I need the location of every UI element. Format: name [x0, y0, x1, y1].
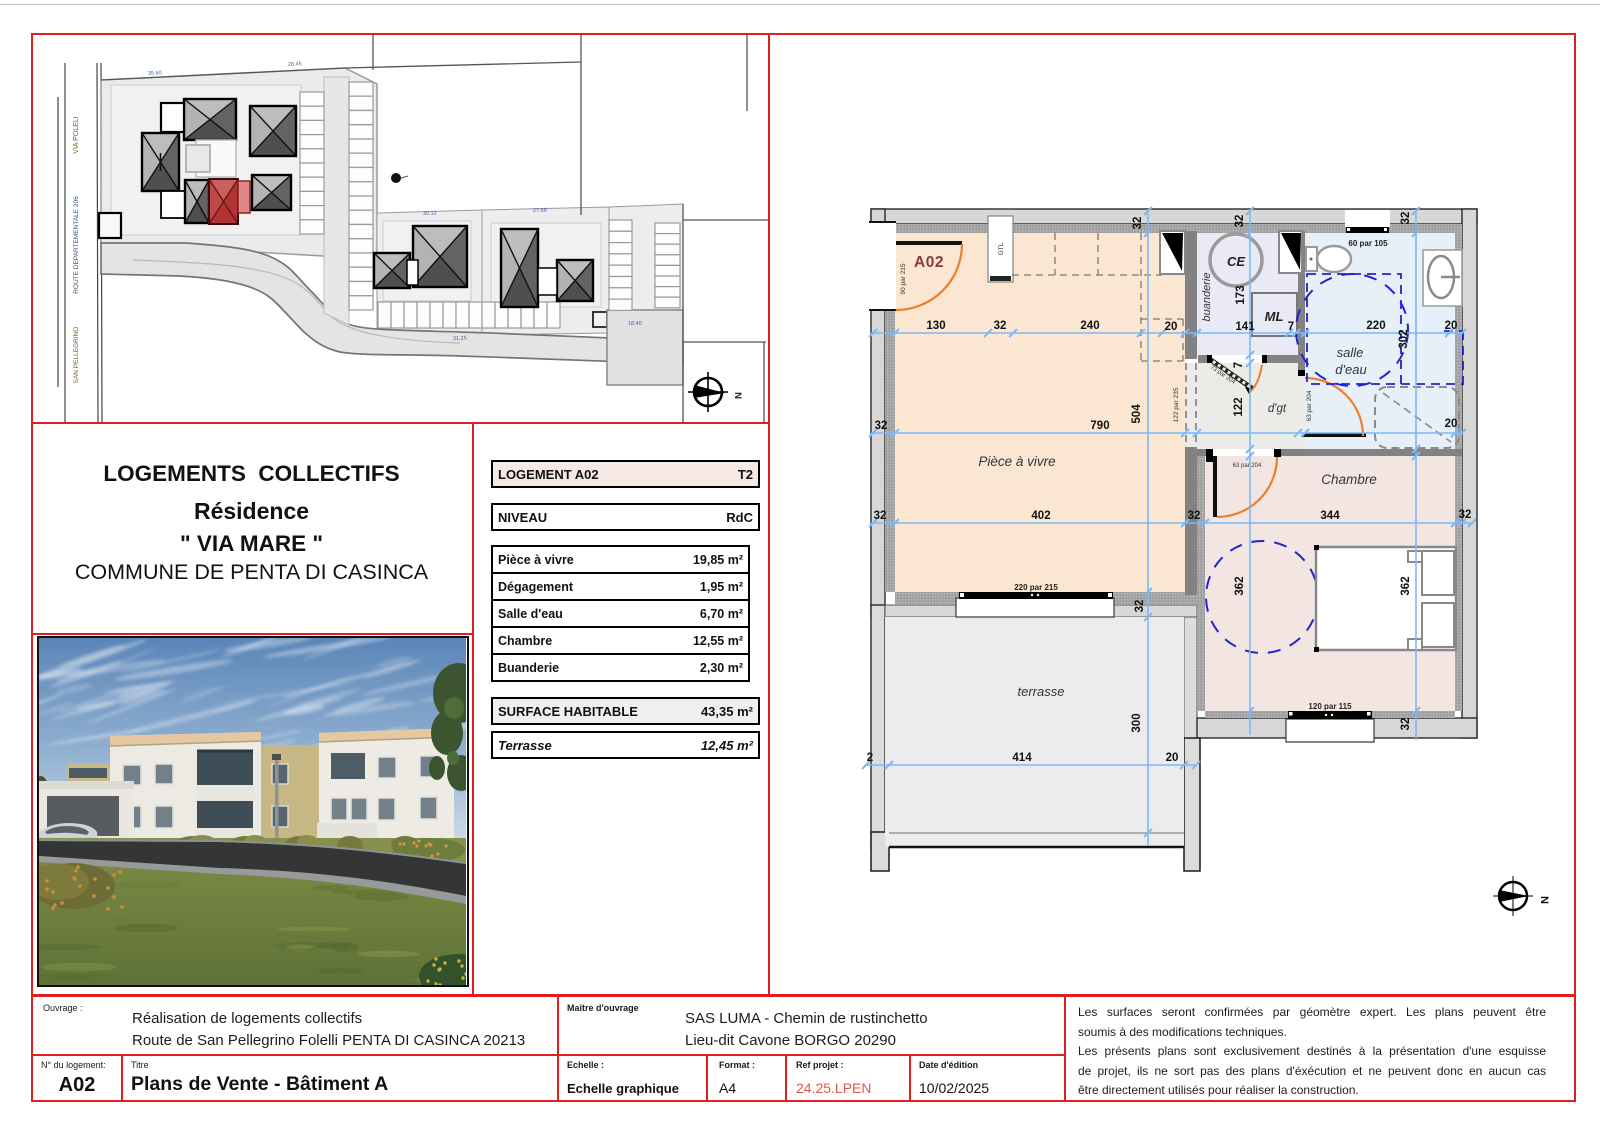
svg-text:141: 141: [1235, 321, 1255, 333]
svg-text:63 par 204: 63 par 204: [1233, 463, 1262, 469]
svg-text:414: 414: [1012, 752, 1032, 764]
svg-text:GTL: GTL: [998, 242, 1005, 255]
svg-text:122 par 235: 122 par 235: [1173, 387, 1180, 422]
svg-text:362: 362: [1400, 576, 1412, 595]
svg-text:60 par 105: 60 par 105: [1348, 239, 1388, 248]
svg-text:300: 300: [1131, 713, 1143, 732]
svg-text:302: 302: [1398, 329, 1410, 348]
svg-text:buanderie: buanderie: [1201, 273, 1213, 322]
svg-text:2: 2: [867, 752, 873, 764]
svg-text:ML: ML: [1265, 309, 1284, 324]
svg-text:ROUTE DEPARTEMENTALE 206: ROUTE DEPARTEMENTALE 206: [73, 196, 80, 294]
svg-text:d'eau: d'eau: [1335, 362, 1366, 377]
svg-text:A02: A02: [914, 254, 944, 271]
svg-text:63 par 204: 63 par 204: [1306, 390, 1313, 421]
svg-text:salle: salle: [1337, 345, 1364, 360]
svg-text:32: 32: [1188, 510, 1201, 522]
svg-text:7: 7: [1288, 321, 1294, 333]
svg-text:32: 32: [1134, 600, 1146, 613]
svg-text:130: 130: [926, 320, 945, 332]
svg-text:20: 20: [1445, 418, 1458, 430]
svg-text:32: 32: [874, 510, 887, 522]
svg-text:VIA POLELI: VIA POLELI: [73, 116, 80, 153]
svg-text:32: 32: [1400, 212, 1412, 225]
svg-text:N: N: [1538, 896, 1550, 904]
svg-text:90 par 215: 90 par 215: [900, 263, 907, 294]
svg-text:Pièce à vivre: Pièce à vivre: [978, 454, 1055, 469]
svg-text:32: 32: [1400, 718, 1412, 731]
svg-text:20: 20: [1165, 321, 1178, 333]
svg-text:terrasse: terrasse: [1018, 684, 1065, 699]
svg-text:20: 20: [1166, 752, 1179, 764]
svg-text:7: 7: [1233, 362, 1245, 368]
svg-text:35.60: 35.60: [148, 70, 162, 77]
svg-text:122: 122: [1233, 397, 1245, 416]
svg-text:120 par 115: 120 par 115: [1308, 702, 1352, 711]
svg-text:504: 504: [1131, 404, 1143, 424]
svg-text:220 par 215: 220 par 215: [1014, 583, 1058, 592]
svg-text:d'gt: d'gt: [1268, 403, 1287, 415]
svg-text:SAN PELLEGRINO: SAN PELLEGRINO: [73, 327, 80, 384]
svg-text:32: 32: [1459, 509, 1472, 521]
svg-text:240: 240: [1080, 320, 1099, 332]
svg-text:CE: CE: [1227, 254, 1245, 269]
svg-text:Chambre: Chambre: [1321, 472, 1377, 487]
svg-text:790: 790: [1090, 420, 1109, 432]
svg-text:32: 32: [875, 420, 888, 432]
svg-text:32: 32: [1234, 215, 1246, 228]
svg-text:18.40: 18.40: [628, 321, 642, 327]
svg-text:20: 20: [1445, 320, 1458, 332]
svg-text:402: 402: [1031, 510, 1050, 522]
svg-text:27.88: 27.88: [533, 208, 547, 214]
svg-text:28.45: 28.45: [288, 61, 302, 68]
svg-text:220: 220: [1366, 320, 1385, 332]
svg-text:32: 32: [1132, 217, 1144, 230]
svg-text:344: 344: [1320, 510, 1340, 522]
svg-text:32: 32: [994, 320, 1007, 332]
svg-text:173: 173: [1235, 285, 1247, 304]
svg-text:N: N: [732, 392, 743, 399]
svg-text:362: 362: [1234, 576, 1246, 595]
svg-text:31.25: 31.25: [453, 336, 467, 342]
svg-text:30.12: 30.12: [423, 211, 437, 217]
